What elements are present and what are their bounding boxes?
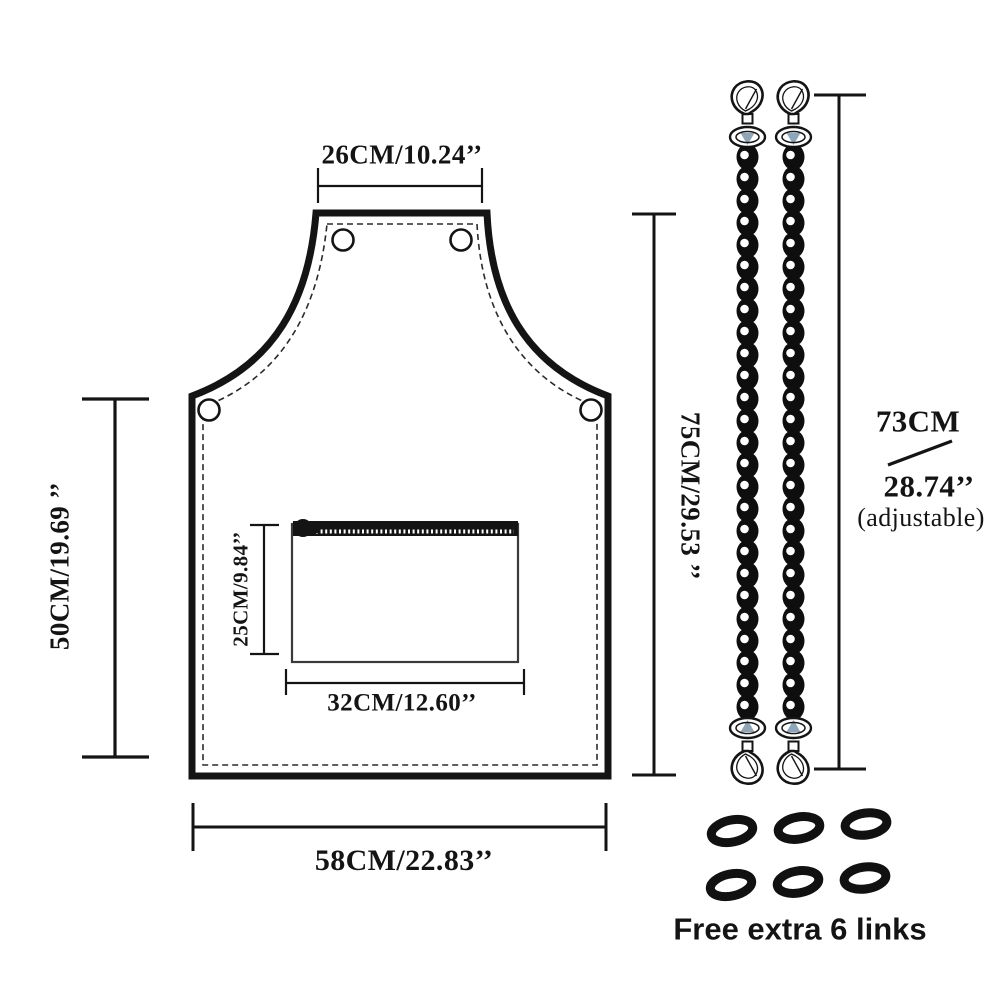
fraction-slash <box>888 441 952 465</box>
chain-link-icon <box>708 870 754 900</box>
chain-link-icon <box>776 814 821 843</box>
chain-link-icon <box>843 864 888 892</box>
snap-hook-icon <box>730 81 765 147</box>
chain-strap-left <box>730 81 765 783</box>
neck-width-label: 26CM/10.24’’ <box>321 142 482 169</box>
chain-link-icon <box>844 810 889 838</box>
snap-hook-icon <box>776 718 811 784</box>
zipper-pull-icon <box>294 519 312 537</box>
chain-length-inch-label: 28.74’’ <box>884 471 975 502</box>
apron-dimension-diagram: 26CM/10.24’’ 50CM/19.69 ’’ 25CM/9.84’’ 3… <box>0 0 1000 1000</box>
zipper-icon <box>293 519 518 537</box>
chain-length-dimension-line <box>814 95 866 769</box>
diagram-canvas <box>0 0 1000 1000</box>
chain-links <box>782 146 805 719</box>
total-height-label: 75CM/29.53 ’’ <box>677 412 704 580</box>
chain-link-icon <box>709 816 755 846</box>
body-height-label: 50CM/19.69 ’’ <box>47 482 74 650</box>
pocket-width-label: 32CM/12.60’’ <box>327 691 476 716</box>
chain-strap-right <box>776 81 811 783</box>
pocket <box>292 519 518 662</box>
bottom-width-label: 58CM/22.83’’ <box>315 846 493 876</box>
snap-hook-icon <box>730 718 765 784</box>
body-height-dimension-line <box>82 399 149 757</box>
extra-links-group <box>708 810 888 900</box>
total-height-dimension-line <box>632 214 676 775</box>
free-links-caption: Free extra 6 links <box>673 914 926 945</box>
chain-link-icon <box>775 868 820 897</box>
pocket-height-label: 25CM/9.84’’ <box>231 531 252 646</box>
snap-hook-icon <box>776 81 811 147</box>
neck-width-dimension-line <box>318 168 482 203</box>
adjustable-label: (adjustable) <box>857 505 985 531</box>
chain-links <box>736 146 759 719</box>
chain-length-cm-label: 73CM <box>876 406 960 437</box>
